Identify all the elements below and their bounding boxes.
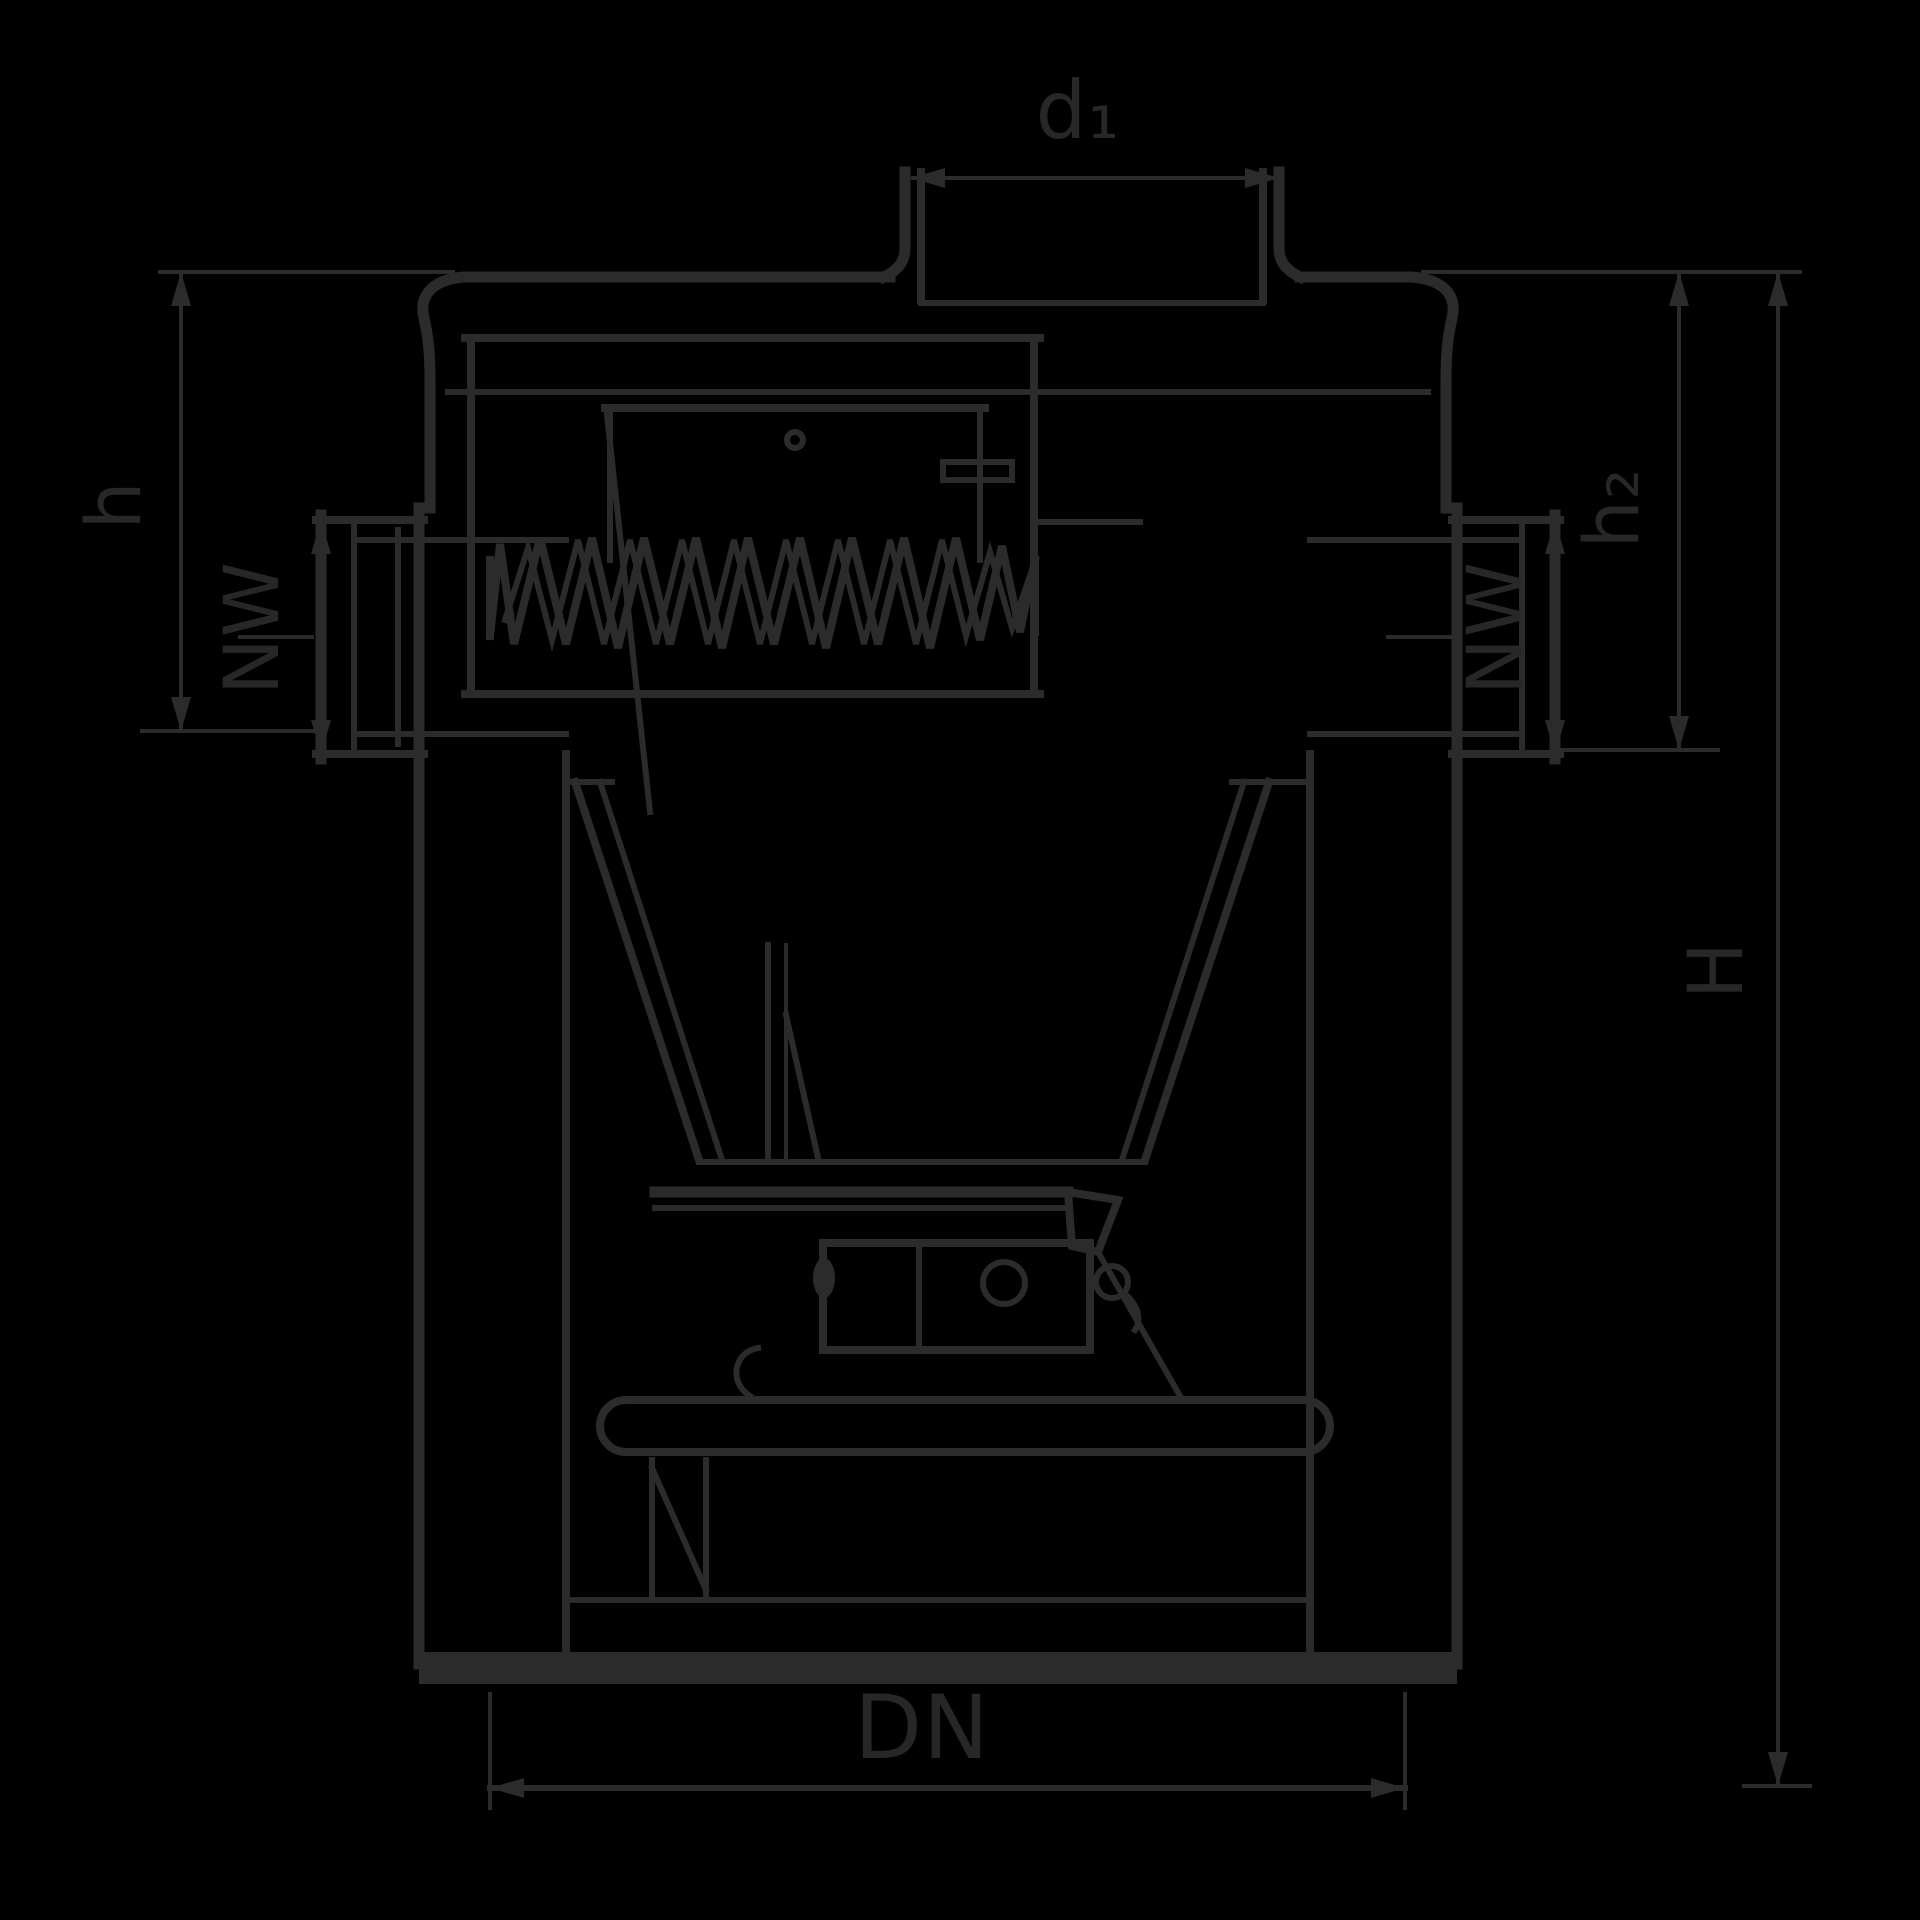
- funnel-cone-right-outer: [1145, 782, 1269, 1160]
- float-box: [823, 1243, 1090, 1350]
- label-inlet-height: h: [69, 480, 158, 529]
- float-mechanism: [600, 1192, 1330, 1598]
- dimension-total-height: H: [1671, 272, 1812, 1786]
- arrow-down: [1768, 1752, 1788, 1786]
- arrow-left: [490, 1778, 524, 1798]
- standpipe-flare: [786, 1015, 818, 1158]
- spigot-outer-left: [884, 172, 905, 277]
- funnel-cone-left-inner: [600, 782, 722, 1160]
- dimension-bottom-outlet: DN: [490, 1676, 1405, 1810]
- drawing-canvas: d₁ h NW NW h₂ H: [0, 0, 1920, 1920]
- arrow-up: [1545, 520, 1565, 554]
- vent-hole: [787, 432, 803, 448]
- arrow-right: [1371, 1778, 1405, 1798]
- spigot-outer-right: [1279, 172, 1300, 277]
- arrow-down: [311, 720, 331, 754]
- label-outlet-nominal-width: NW: [1450, 561, 1539, 695]
- arrow-down: [171, 697, 191, 731]
- arrow-left: [911, 168, 945, 188]
- arrow-up: [1768, 272, 1788, 306]
- label-inlet-nominal-width: NW: [207, 561, 296, 695]
- label-bottom-outlet: DN: [854, 1676, 990, 1779]
- retainer-hook: [736, 1348, 758, 1396]
- arrow-up: [311, 520, 331, 554]
- body-right-wall: [1300, 277, 1457, 1664]
- funnel-and-sump: [566, 754, 1310, 1652]
- label-outlet-height: h₂: [1567, 468, 1656, 549]
- arrow-up: [1669, 272, 1689, 306]
- top-spigot: [884, 172, 1300, 303]
- valve-body-outline: [419, 277, 1457, 1684]
- dimension-top-diameter: d₁: [911, 64, 1279, 188]
- compression-spring: [490, 538, 1035, 648]
- technical-drawing: d₁ h NW NW h₂ H: [0, 0, 1920, 1920]
- arrow-up: [171, 272, 191, 306]
- pivot-ring-center: [983, 1262, 1025, 1304]
- funnel-cone-right-inner: [1122, 782, 1244, 1160]
- valve-disc: [600, 1400, 1330, 1452]
- outlet-stub-diagonal: [652, 1468, 706, 1590]
- arrow-down: [1669, 716, 1689, 750]
- funnel-cone-left-outer: [575, 782, 699, 1160]
- dimension-outlet-nominal-width: NW: [1450, 520, 1565, 754]
- label-top-diameter: d₁: [1036, 64, 1121, 157]
- label-total-height: H: [1671, 941, 1760, 999]
